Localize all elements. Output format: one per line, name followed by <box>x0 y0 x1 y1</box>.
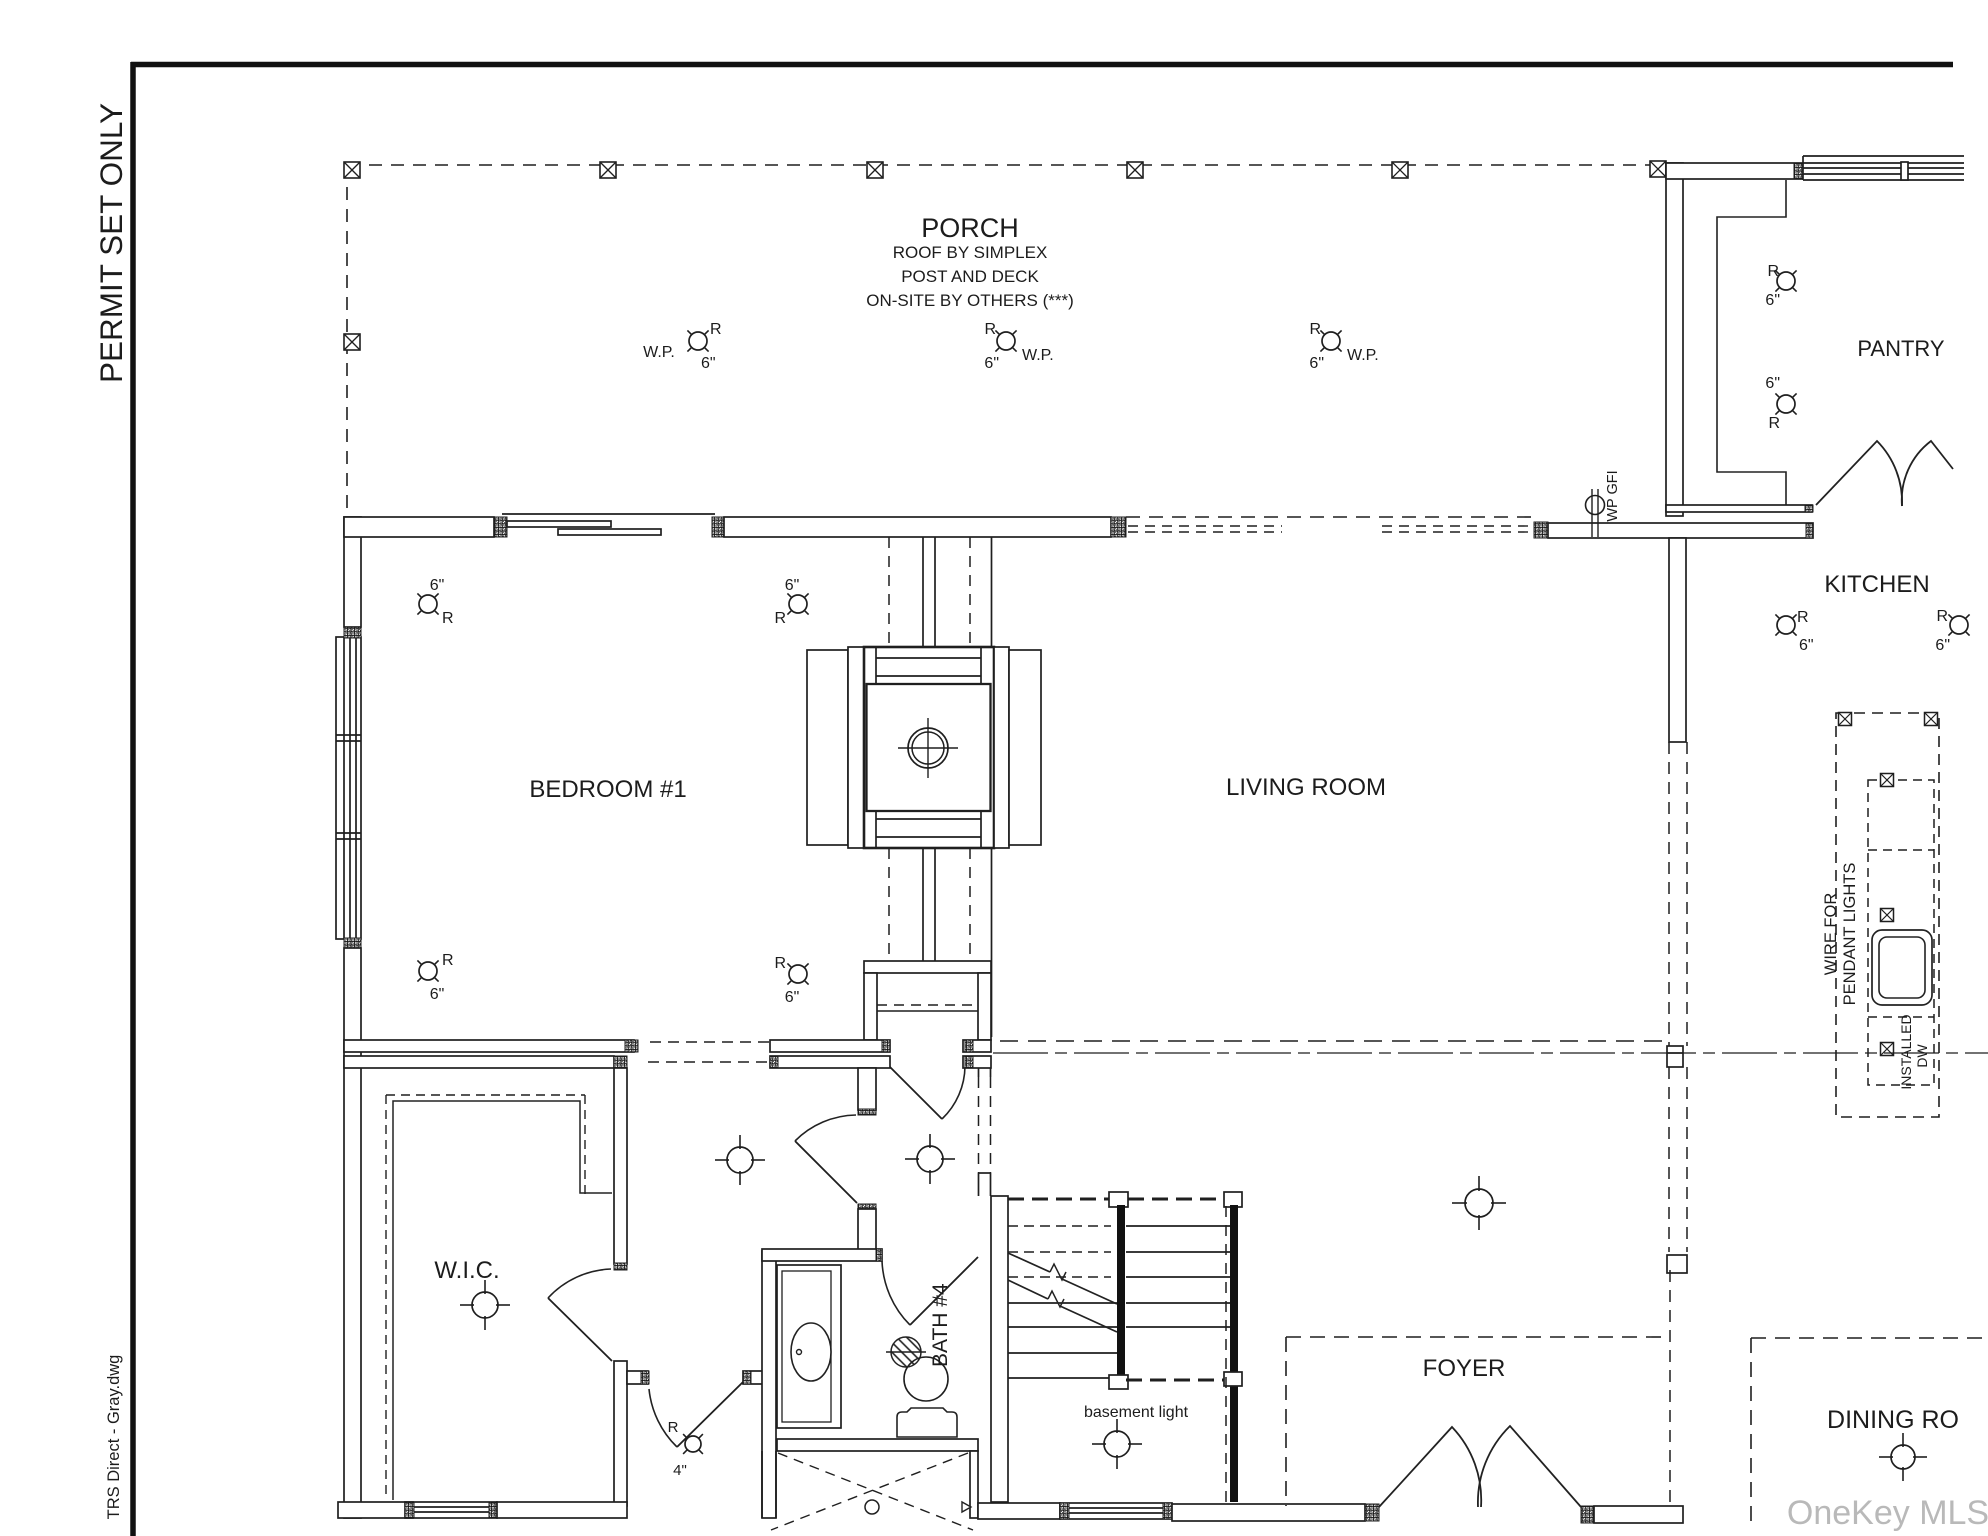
svg-text:DINING RO: DINING RO <box>1827 1406 1959 1434</box>
svg-text:PERMIT SET ONLY: PERMIT SET ONLY <box>93 103 129 383</box>
svg-text:6": 6" <box>785 577 800 594</box>
svg-text:R: R <box>774 955 786 972</box>
svg-text:R: R <box>1768 415 1780 432</box>
svg-text:W.P.: W.P. <box>1347 347 1379 364</box>
svg-text:TRS Direct - Gray.dwg: TRS Direct - Gray.dwg <box>105 1355 123 1520</box>
svg-text:R: R <box>1767 263 1779 280</box>
svg-text:6": 6" <box>1765 375 1780 392</box>
svg-text:POST AND DECK: POST AND DECK <box>901 267 1039 286</box>
svg-text:OneKey MLS: OneKey MLS <box>1787 1494 1988 1532</box>
svg-text:R: R <box>1309 321 1321 338</box>
svg-text:6": 6" <box>984 355 999 372</box>
svg-text:W.P.: W.P. <box>1022 347 1054 364</box>
svg-text:W.P.: W.P. <box>643 344 675 361</box>
svg-text:R: R <box>442 610 454 627</box>
svg-text:6": 6" <box>430 577 445 594</box>
svg-text:4": 4" <box>673 1462 687 1479</box>
svg-text:WP GFI: WP GFI <box>1605 470 1621 521</box>
svg-text:R: R <box>1797 609 1809 626</box>
svg-text:BEDROOM #1: BEDROOM #1 <box>529 776 686 803</box>
svg-text:PANTRY: PANTRY <box>1857 336 1945 361</box>
svg-text:WIRE FOR: WIRE FOR <box>1822 893 1840 976</box>
svg-text:R: R <box>1936 608 1948 625</box>
svg-text:LIVING ROOM: LIVING ROOM <box>1226 774 1386 801</box>
svg-text:R: R <box>442 952 454 969</box>
svg-text:FOYER: FOYER <box>1423 1355 1506 1382</box>
svg-text:ON-SITE BY OTHERS (***): ON-SITE BY OTHERS (***) <box>866 291 1074 310</box>
svg-text:PENDANT LIGHTS: PENDANT LIGHTS <box>1841 863 1859 1006</box>
svg-text:R: R <box>710 321 722 338</box>
svg-text:6": 6" <box>1799 637 1814 654</box>
svg-text:R: R <box>774 610 786 627</box>
svg-text:basement light: basement light <box>1084 1404 1189 1421</box>
svg-text:INSTALLED: INSTALLED <box>1898 1014 1914 1089</box>
svg-text:R: R <box>984 321 996 338</box>
svg-text:BATH #4: BATH #4 <box>929 1283 952 1367</box>
svg-text:KITCHEN: KITCHEN <box>1824 571 1929 598</box>
svg-text:6": 6" <box>430 986 445 1003</box>
svg-text:6": 6" <box>1309 355 1324 372</box>
svg-text:DW: DW <box>1914 1044 1930 1068</box>
svg-text:6": 6" <box>785 989 800 1006</box>
svg-text:R: R <box>668 1419 679 1436</box>
svg-text:PORCH: PORCH <box>921 213 1019 243</box>
svg-text:6": 6" <box>1765 292 1780 309</box>
svg-text:6": 6" <box>1935 637 1950 654</box>
svg-text:ROOF BY SIMPLEX: ROOF BY SIMPLEX <box>893 243 1048 262</box>
svg-text:6": 6" <box>701 355 716 372</box>
svg-text:W.I.C.: W.I.C. <box>434 1257 499 1284</box>
